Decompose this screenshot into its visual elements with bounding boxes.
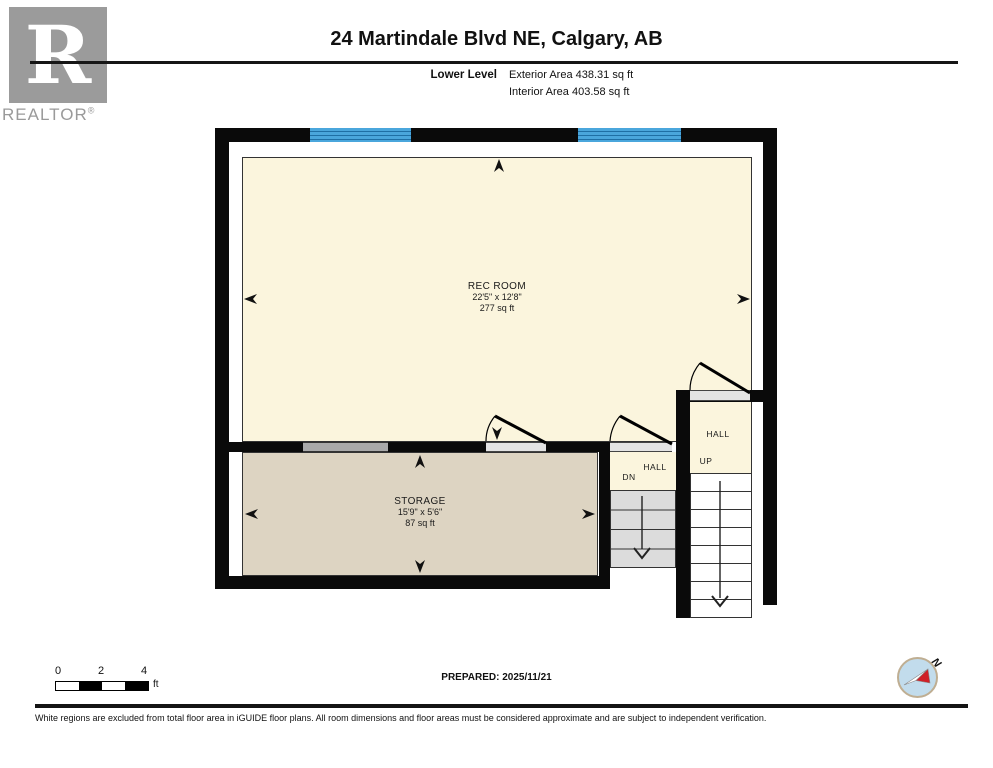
- storage-name: STORAGE: [320, 496, 520, 507]
- stairs-up: [690, 473, 752, 618]
- door-opening-hall-dn: [610, 442, 672, 452]
- footer-divider-line: [35, 704, 968, 708]
- registered-symbol: ®: [88, 105, 96, 115]
- window-1: [310, 128, 411, 142]
- rec-room-name: REC ROOM: [397, 281, 597, 292]
- hall-up-direction: UP: [691, 456, 721, 466]
- header-divider-line: [30, 61, 958, 64]
- storage-dimensions: 15'9" x 5'6": [320, 507, 520, 518]
- window-2: [578, 128, 681, 142]
- storage-sqft: 87 sq ft: [320, 518, 520, 529]
- floorplan-page: R REALTOR® 24 Martindale Blvd NE, Calgar…: [0, 0, 993, 768]
- level-label: Lower Level: [340, 69, 497, 81]
- hall-up-name: HALL: [687, 429, 749, 439]
- realtor-wordmark: REALTOR®: [2, 105, 122, 125]
- door-opening-storage: [486, 442, 546, 452]
- scale-segment: [56, 682, 79, 690]
- hall-dn-name: HALL: [625, 462, 685, 472]
- wall-divider: [218, 442, 610, 452]
- wall-stairwell-divider: [676, 390, 690, 618]
- door-opening-hall-up: [690, 390, 750, 401]
- stairs-down: [610, 490, 676, 568]
- scale-segment: [125, 682, 148, 690]
- hall-dn-direction: DN: [613, 472, 645, 482]
- rec-room-dimensions: 22'5" x 12'8": [397, 292, 597, 303]
- wall-top: [218, 128, 777, 142]
- prepared-date: PREPARED: 2025/11/21: [0, 672, 993, 683]
- realtor-logo-letter: R: [25, 15, 91, 95]
- realtor-wordmark-text: REALTOR: [2, 105, 88, 124]
- disclaimer-text: White regions are excluded from total fl…: [35, 713, 766, 723]
- realtor-logo: R: [9, 7, 107, 103]
- wall-left: [215, 128, 229, 589]
- interior-area-text: Interior Area 403.58 sq ft: [509, 86, 629, 98]
- wall-bottom: [215, 576, 610, 589]
- rec-room-label: REC ROOM 22'5" x 12'8" 277 sq ft: [397, 281, 597, 314]
- scale-segment: [102, 682, 125, 690]
- exterior-area-text: Exterior Area 438.31 sq ft: [509, 69, 633, 81]
- wall-stair-left: [599, 442, 610, 589]
- page-title: 24 Martindale Blvd NE, Calgary, AB: [0, 28, 993, 51]
- pony-wall-opening: [303, 442, 388, 452]
- scale-segment: [79, 682, 102, 690]
- storage-label: STORAGE 15'9" x 5'6" 87 sq ft: [320, 496, 520, 529]
- wall-right: [763, 128, 777, 605]
- rec-room-sqft: 277 sq ft: [397, 303, 597, 314]
